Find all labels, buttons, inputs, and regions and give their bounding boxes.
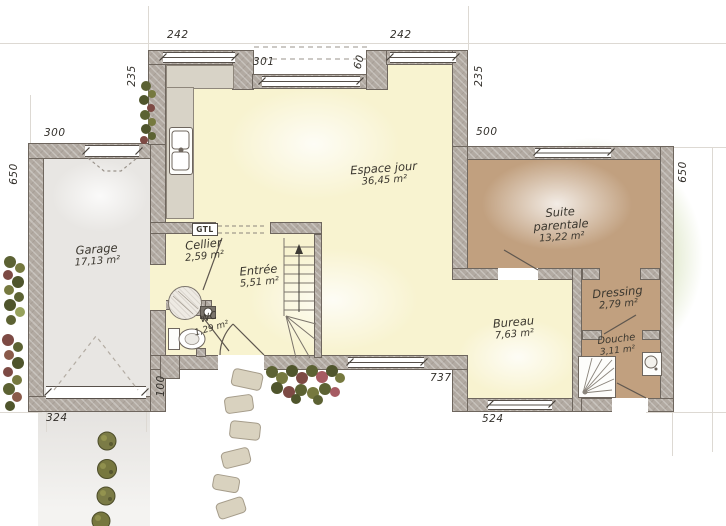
guide-line <box>148 6 149 50</box>
dim-bay-depth: 60 <box>352 54 367 71</box>
stepping-stones <box>212 368 264 520</box>
wall-suite-dressing <box>582 268 600 280</box>
floor-plan: GTL <box>0 0 726 526</box>
dim-bureau-bottom: 524 <box>482 413 504 425</box>
hedge-west-lower <box>2 334 24 411</box>
dim-garage-top: 300 <box>44 127 66 139</box>
wall-east-upper <box>452 50 468 160</box>
gtl-box: GTL <box>192 223 218 236</box>
dim-suite-top: 500 <box>476 126 498 138</box>
floor-garage <box>44 159 150 396</box>
dim-facade-bottom: 737 <box>430 372 452 384</box>
window-bureau <box>488 400 552 410</box>
room-label-suite-parentale: Suite parentale 13,22 m² <box>527 204 595 246</box>
window-north-left <box>163 52 235 63</box>
wall-garage-house <box>150 143 166 265</box>
front-door-opening <box>218 355 264 370</box>
guide-line <box>468 6 469 50</box>
dim-side-left-top: 235 <box>126 65 138 87</box>
wall-stair-east <box>314 234 322 358</box>
bush-south <box>266 365 345 405</box>
shower-tray <box>578 356 616 398</box>
driveway <box>38 412 150 526</box>
wall-east-main <box>660 146 674 412</box>
window-living-south <box>348 357 424 368</box>
guide-line <box>672 412 673 456</box>
guide-line <box>30 95 31 145</box>
wall-bay-pillar-right <box>366 50 388 90</box>
wall-suite-dressing <box>640 268 660 280</box>
door-garage-side <box>85 145 139 157</box>
dim-garage-side-left: 650 <box>8 163 20 185</box>
window-north-right <box>390 52 456 63</box>
window-bay <box>262 76 360 87</box>
wall-suite-west <box>452 146 468 280</box>
window-suite <box>535 148 611 158</box>
wall-wc-east <box>196 348 206 357</box>
dim-side-right-top: 235 <box>473 65 485 87</box>
douche-washbasin <box>642 352 662 376</box>
wall-garage-left <box>28 143 44 412</box>
garage-door <box>46 386 146 399</box>
dim-window-top-left: 242 <box>167 29 189 41</box>
dim-garage-bottom: 324 <box>46 412 68 424</box>
wall-bay-pillar-left <box>232 50 254 90</box>
wall-stair-top <box>270 222 322 234</box>
hedge-west-upper <box>3 256 25 325</box>
door-opening-suite <box>498 268 538 280</box>
room-name: Suite parentale <box>527 204 595 235</box>
dim-window-top-right: 242 <box>390 29 412 41</box>
kitchen-counter <box>166 65 234 89</box>
guide-line <box>0 43 726 44</box>
dim-porch-depth: 100 <box>155 375 167 397</box>
dim-bay-width: 301 <box>253 56 275 68</box>
toilet-tank <box>168 328 180 350</box>
dim-suite-side-right: 650 <box>677 161 689 183</box>
door-opening-douche-ext <box>612 398 648 412</box>
floor-living <box>386 65 452 91</box>
door-opening-garage-cellier <box>150 265 166 310</box>
kitchen-sink <box>169 127 193 175</box>
guide-line <box>0 412 42 413</box>
